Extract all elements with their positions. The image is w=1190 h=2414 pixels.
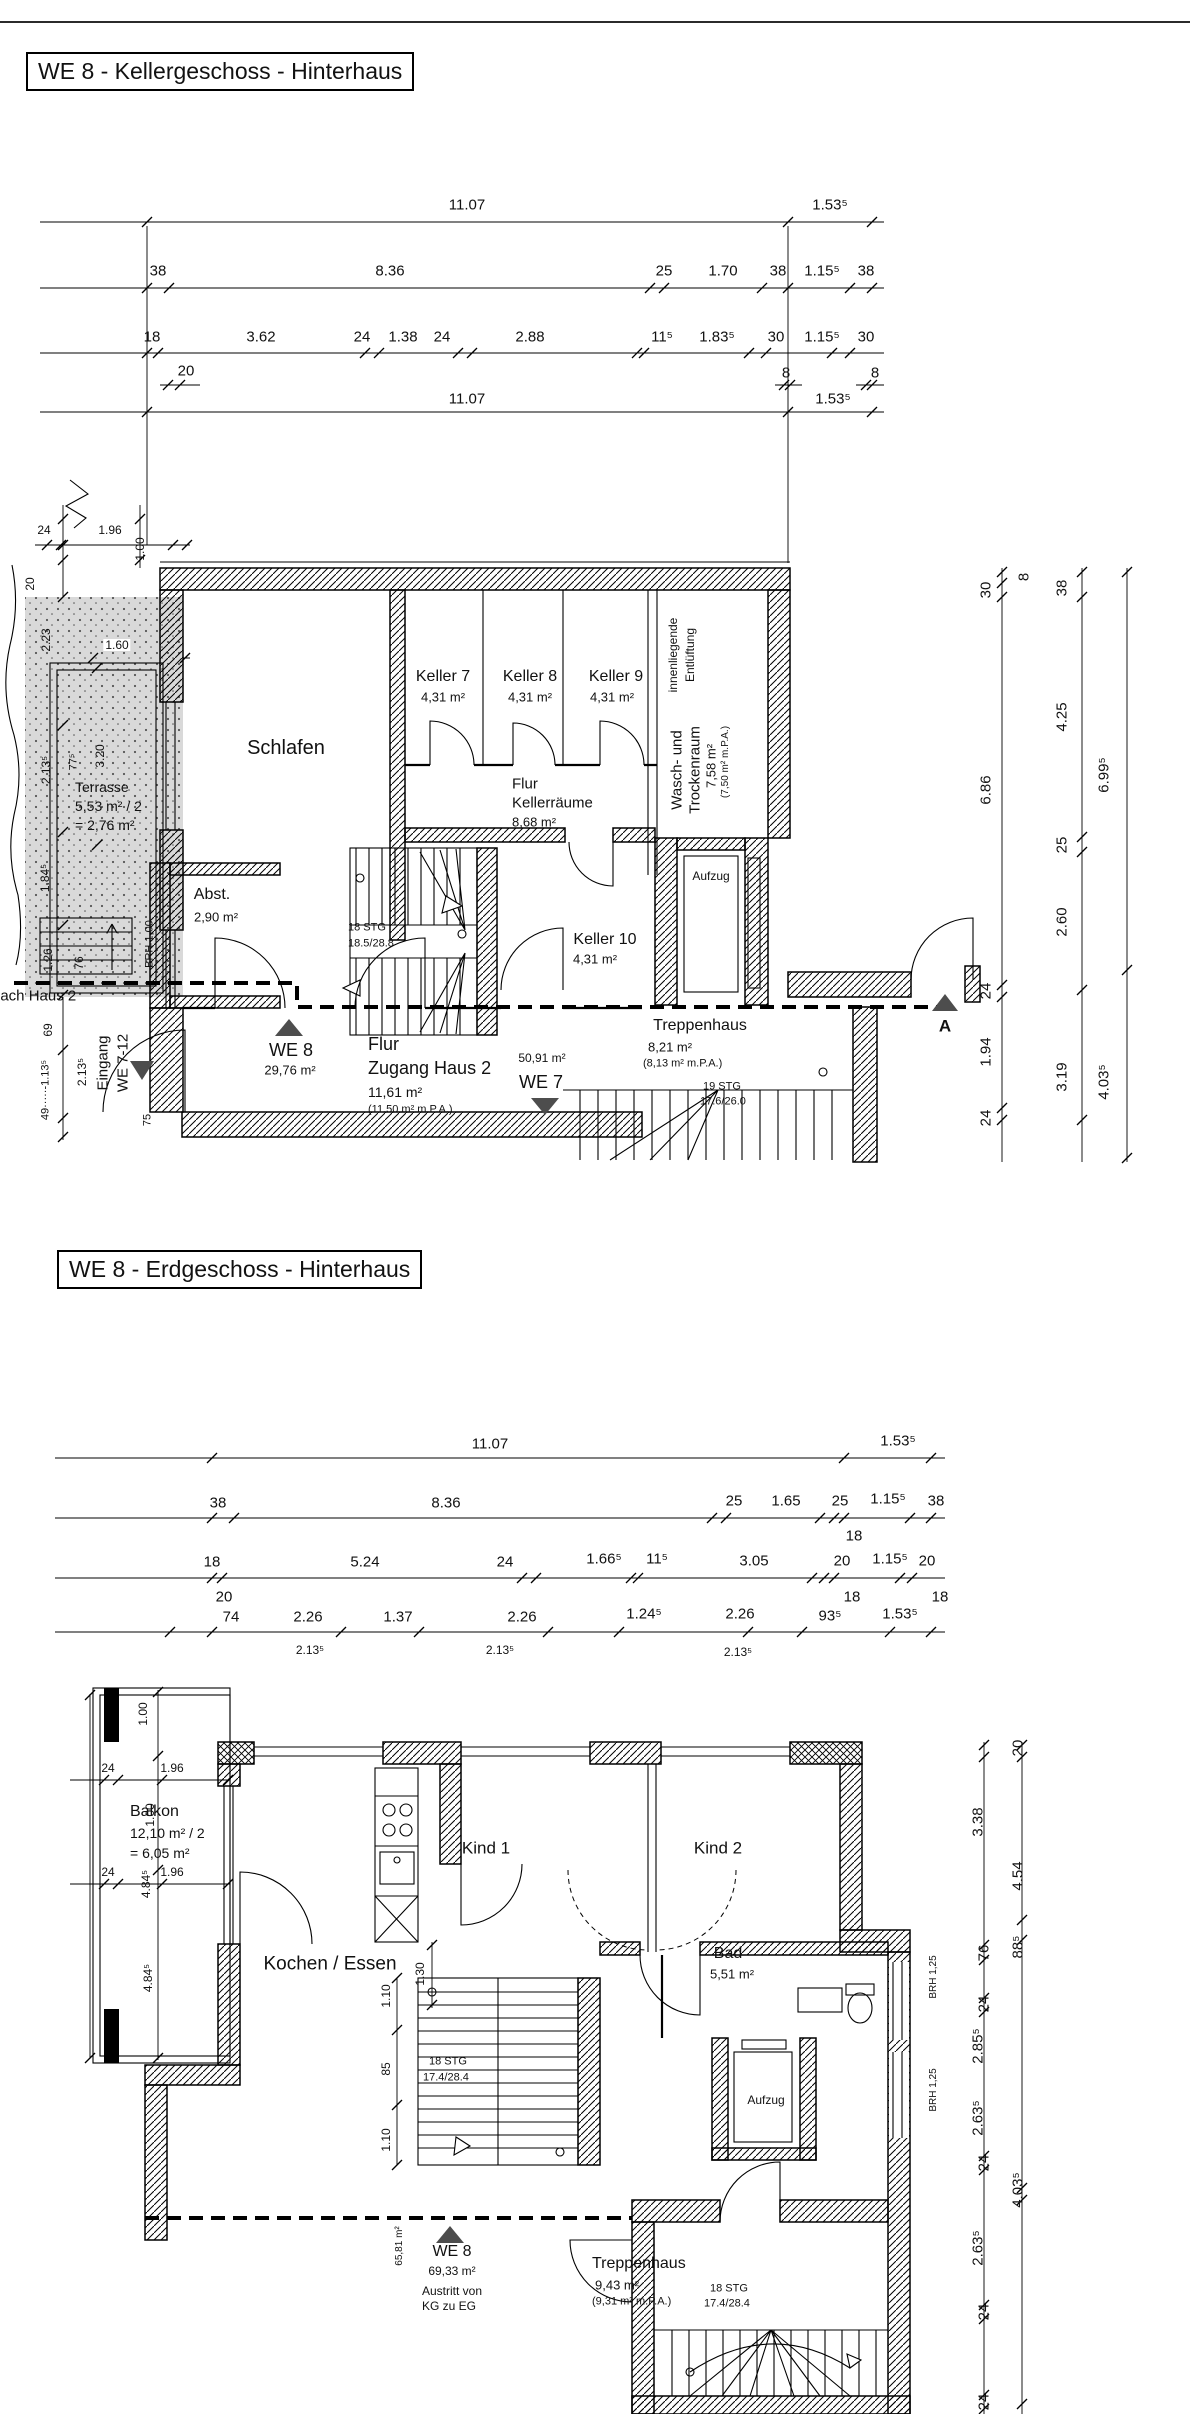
dim-label: 24 (434, 330, 451, 345)
room-label: Kellerräume (512, 796, 593, 811)
dim-label: 1.10 (380, 2128, 392, 2151)
dim-label: 1.24⁵ (626, 1607, 661, 1622)
dim-label: 3.20 (94, 744, 106, 767)
dim-label: 6.86 (979, 775, 994, 804)
annotation: nach Haus 2 (0, 989, 76, 1004)
dim-label: 1.00 (137, 1702, 149, 1725)
dim-label: 1.10 (380, 1984, 392, 2007)
dim-label: 4.54 (1011, 1861, 1026, 1890)
annotation: WE 7-12 (116, 1034, 131, 1092)
dim-label: 76 (73, 956, 85, 969)
sill-height-note: BRH 1,25 (929, 2068, 939, 2111)
dim-label: 24 (497, 1555, 514, 1570)
stair-note: 19 STG (703, 1082, 741, 1093)
room-label: Kochen / Essen (263, 1955, 396, 1974)
dim-label: 75 (143, 1114, 154, 1126)
dim-label: 3.38 (971, 1807, 986, 1836)
dim-label: 24 (101, 1866, 114, 1878)
dim-label: 25 (1055, 837, 1070, 854)
dim-label: 11⁵ (646, 1552, 668, 1567)
dim-label: 5.24 (350, 1555, 379, 1570)
dim-label: 1.96 (160, 1762, 183, 1774)
dim-label: 1.38 (388, 330, 417, 345)
dim-label: 18 (204, 1555, 221, 1570)
dim-label: 24 (979, 1110, 994, 1127)
dim-label: 2.88 (515, 330, 544, 345)
dim-label: 1.96 (160, 1866, 183, 1878)
dim-label: 88⁵ (1011, 1936, 1026, 1959)
room-label: Keller 10 (573, 932, 636, 948)
dim-label: 1.84⁵ (39, 864, 51, 892)
dim-label: 24 (977, 2155, 992, 2172)
kg-plan (6, 222, 1127, 1162)
dim-label: 38 (150, 264, 167, 279)
dim-label: 24 (354, 330, 371, 345)
dim-label: 1.53⁵ (815, 392, 850, 407)
dim-label: 1.30 (414, 1962, 426, 1985)
room-label: Wasch- und (670, 730, 685, 809)
sill-height-note: BRH 1,25 (929, 1955, 939, 1998)
room-label: Zugang Haus 2 (368, 1059, 491, 1077)
eg-title-box: WE 8 - Erdgeschoss - Hinterhaus (57, 1250, 422, 1289)
room-label: Kind 2 (694, 1840, 742, 1857)
section-marker: A (939, 1018, 951, 1035)
area-label: 4,31 m² (508, 691, 552, 704)
dim-label: 77⁵ (69, 754, 80, 771)
dim-label: 25 (656, 264, 673, 279)
dim-label: 25 (726, 1494, 743, 1509)
dim-label: 1.70 (708, 264, 737, 279)
dim-label: 24 (37, 524, 50, 536)
area-label: 4,31 m² (421, 691, 465, 704)
area-label: (11,50 m² m.P.A.) (368, 1105, 453, 1116)
stair-note: 17.4/28.4 (423, 2073, 469, 2084)
dim-label: 18 (844, 1590, 861, 1605)
dim-label: 38 (1055, 580, 1070, 597)
room-label: Flur (368, 1035, 399, 1053)
room-label: Balkon (130, 1804, 179, 1820)
annotation: Entlüftung (684, 628, 696, 682)
area-label: 11,61 m² (368, 1085, 422, 1099)
dim-label: 24 (101, 1762, 114, 1774)
dim-label: 74 (223, 1610, 240, 1625)
dim-label: 1.26 (42, 948, 54, 971)
dim-label: 1.53⁵ (882, 1607, 917, 1622)
dim-label: 1.15⁵ (872, 1552, 907, 1567)
dim-label: 3.62 (246, 330, 275, 345)
dim-label: 1.53⁵ (812, 198, 847, 213)
dim-label: 38 (928, 1494, 945, 1509)
dim-label: 3.19 (1055, 1062, 1070, 1091)
dim-label: 85 (380, 2062, 392, 2075)
area-label: 69,33 m² (428, 2265, 475, 2277)
dim-label: 49·····-1.13⁵ (41, 1060, 52, 1120)
dim-label: 18 (932, 1590, 949, 1605)
dim-label: 20 (834, 1554, 851, 1569)
dim-label: 2.23 (40, 628, 52, 651)
room-label: Terrasse (75, 780, 129, 794)
dim-label: 4.84⁵ (142, 1964, 154, 1992)
area-label: (9,31 m² m.P.A.) (592, 2297, 671, 2308)
dim-label: 18 (846, 1529, 863, 1544)
dim-label: 8 (1017, 573, 1032, 581)
stair-note: 17.4/28.4 (704, 2299, 750, 2310)
dim-label: 2.26 (293, 1610, 322, 1625)
dim-label: 25 (832, 1494, 849, 1509)
dim-label: 1.15⁵ (870, 1492, 905, 1507)
unit-label: WE 8 (432, 2244, 471, 2260)
dim-label: 20 (178, 364, 195, 379)
dim-label: 2.63⁵ (971, 2100, 986, 2135)
area-label: 4,31 m² (573, 953, 617, 966)
stair-note: 18 STG (710, 2284, 748, 2295)
dim-label: 38 (770, 264, 787, 279)
dim-label: 8 (871, 366, 879, 381)
room-label: Keller 9 (589, 669, 643, 685)
dim-label: 1.37 (383, 1610, 412, 1625)
dim-label: 2.13⁵ (724, 1646, 752, 1658)
area-label: 50,91 m² (518, 1052, 565, 1064)
dim-label: 6.99⁵ (1097, 757, 1112, 792)
area-label: 29,76 m² (264, 1064, 315, 1077)
stair-note: 17.6/26.0 (700, 1097, 746, 1108)
dim-label: 1.60 (103, 639, 130, 651)
dim-label: 2.13⁵ (486, 1644, 514, 1656)
dim-label: 4.25 (1055, 702, 1070, 731)
dim-label: 2.26 (725, 1607, 754, 1622)
dim-label: 30 (979, 582, 994, 599)
area-label: (7,50 m² m.P.A.) (721, 726, 731, 798)
room-label: Flur (512, 777, 538, 792)
dim-label: 8 (782, 366, 790, 381)
dim-label: 1.96 (98, 524, 121, 536)
room-label: Schlafen (247, 738, 325, 758)
eg-title: WE 8 - Erdgeschoss - Hinterhaus (69, 1256, 410, 1282)
dim-label: 8.36 (431, 1496, 460, 1511)
dim-label: 20 (919, 1554, 936, 1569)
dim-label: 11.07 (449, 392, 485, 407)
room-label: Trockenraum (688, 726, 703, 814)
room-label: Bad (714, 1946, 742, 1962)
dim-label: 4.84⁵ (140, 1870, 152, 1898)
dim-label: 69 (42, 1023, 54, 1036)
kg-title: WE 8 - Kellergeschoss - Hinterhaus (38, 58, 402, 84)
area-label: 5,51 m² (710, 1968, 754, 1981)
dim-label: 93⁵ (819, 1609, 842, 1624)
dim-label: 76 (977, 1945, 992, 1962)
unit-label: WE 7 (519, 1073, 563, 1091)
dim-label: 24 (977, 1996, 992, 2013)
dim-label: 24 (977, 2304, 992, 2321)
area-label: 8,68 m² (512, 816, 556, 829)
room-label: Treppenhaus (592, 2256, 686, 2272)
dim-label: 8.36 (375, 264, 404, 279)
dim-label: 1.65 (771, 1494, 800, 1509)
dim-label: 2.26 (507, 1610, 536, 1625)
room-label: Keller 8 (503, 669, 557, 685)
room-label: Keller 7 (416, 669, 470, 685)
dim-label: 20 (24, 577, 36, 590)
dim-label: 1.15⁵ (804, 330, 839, 345)
dim-label: 38 (858, 264, 875, 279)
dim-label: 30 (768, 330, 785, 345)
kg-title-box: WE 8 - Kellergeschoss - Hinterhaus (26, 52, 414, 91)
stair-note: 18 STG (348, 923, 386, 934)
dim-label: 2.85⁵ (971, 2028, 986, 2063)
dim-label: 30 (858, 330, 875, 345)
dim-label: 2.13⁵ (76, 1058, 88, 1086)
area-label: 9,43 m² (595, 2279, 639, 2292)
dim-label: 24 (977, 2394, 992, 2411)
area-label: 8,21 m² (648, 1041, 692, 1054)
area-label: 2,90 m² (194, 911, 238, 924)
area-label: 7,58 m² (705, 744, 718, 788)
dim-label: 1.53⁵ (880, 1434, 915, 1449)
stair-note: 18.5/28.8 (348, 939, 394, 950)
dim-label: 2.13⁵ (296, 1644, 324, 1656)
room-label: Treppenhaus (653, 1018, 747, 1034)
unit-label: WE 8 (269, 1041, 313, 1059)
eg-plan (55, 1458, 1022, 2414)
floor-plan-sheet: WE 8 - Kellergeschoss - Hinterhaus WE 8 … (0, 0, 1190, 2414)
dim-label: 2.63⁵ (971, 2230, 986, 2265)
dim-label: 1.66⁵ (586, 1552, 621, 1567)
dim-label: 4.03⁵ (1011, 2172, 1026, 2207)
dim-label: 20 (1011, 1740, 1026, 1757)
area-label: 4,31 m² (590, 691, 634, 704)
room-label: Aufzug (747, 2094, 784, 2106)
dim-label: 2.13⁵ (40, 756, 52, 784)
annotation: Eingang (96, 1035, 111, 1090)
dim-label: 1.94 (979, 1037, 994, 1066)
area-label: 12,10 m² / 2 (130, 1826, 205, 1840)
annotation: Austritt von (422, 2285, 482, 2297)
dim-label: 2.60 (1055, 907, 1070, 936)
area-label: = 2,76 m² (75, 818, 135, 832)
room-label: Aufzug (692, 870, 729, 882)
annotation: KG zu EG (422, 2300, 476, 2312)
room-label: Abst. (194, 887, 230, 903)
dim-label: 1.83⁵ (699, 330, 734, 345)
dim-label: 11.07 (449, 198, 485, 213)
stair-note: 18 STG (429, 2057, 467, 2068)
dim-label: 11⁵ (651, 330, 673, 345)
area-label: 65,81 m² (395, 2226, 405, 2265)
area-label: = 6,05 m² (130, 1846, 190, 1860)
dim-label: 11.07 (472, 1437, 508, 1452)
dim-label: 1.15⁵ (804, 264, 839, 279)
annotation: innenliegende (667, 618, 679, 693)
sill-height-note: BRH 1,00 (145, 920, 156, 968)
area-label: 5,53 m² / 2 (75, 799, 142, 813)
room-label: Kind 1 (462, 1840, 510, 1857)
dim-label: 4.03⁵ (1097, 1064, 1112, 1099)
dim-label: 1.00 (134, 537, 146, 560)
dim-label: 38 (210, 1496, 227, 1511)
dim-label: 20 (216, 1590, 233, 1605)
dim-label: 3.05 (739, 1554, 768, 1569)
dim-label: 24 (979, 983, 994, 1000)
dim-label: 18 (144, 330, 161, 345)
area-label: (8,13 m² m.P.A.) (643, 1059, 722, 1070)
